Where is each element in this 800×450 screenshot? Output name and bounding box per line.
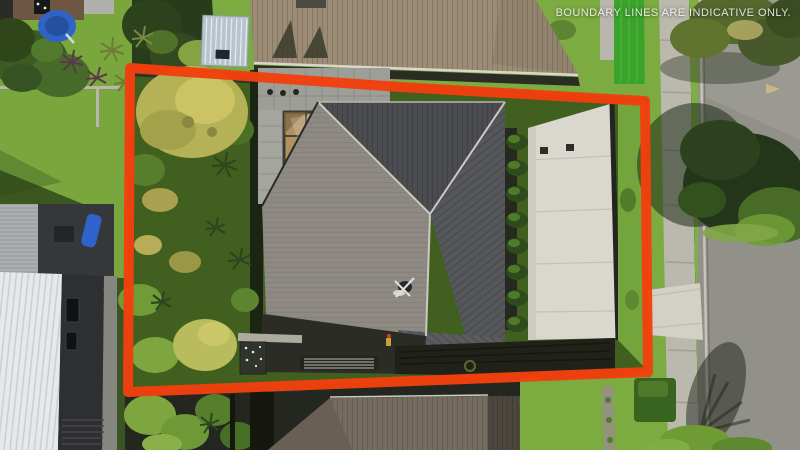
- vehicle-crossing: [648, 283, 703, 340]
- skylight: [296, 0, 326, 8]
- subject-property: [118, 66, 649, 392]
- disclaimer-watermark: BOUNDARY LINES ARE INDICATIVE ONLY.: [556, 7, 791, 19]
- gate-post: [540, 147, 548, 154]
- dark-wall-band: [58, 274, 104, 450]
- hedge-canopy: [702, 224, 778, 242]
- garden-shed: [240, 342, 266, 374]
- blue-shed: [201, 15, 249, 67]
- skylight-window: [66, 298, 79, 322]
- rooftop-sign: [34, 0, 50, 14]
- louvre-bench: [300, 356, 378, 370]
- driveway: [528, 104, 616, 340]
- left-neighbor: [0, 0, 136, 450]
- aerial-photo: [0, 0, 800, 450]
- pavers: [84, 0, 114, 14]
- marker-flag: [386, 338, 391, 346]
- side-path: [102, 276, 119, 450]
- fence-post-line: [230, 394, 235, 450]
- aerial-photo-frame: BOUNDARY LINES ARE INDICATIVE ONLY.: [0, 0, 800, 450]
- tussock-grass: [142, 188, 178, 212]
